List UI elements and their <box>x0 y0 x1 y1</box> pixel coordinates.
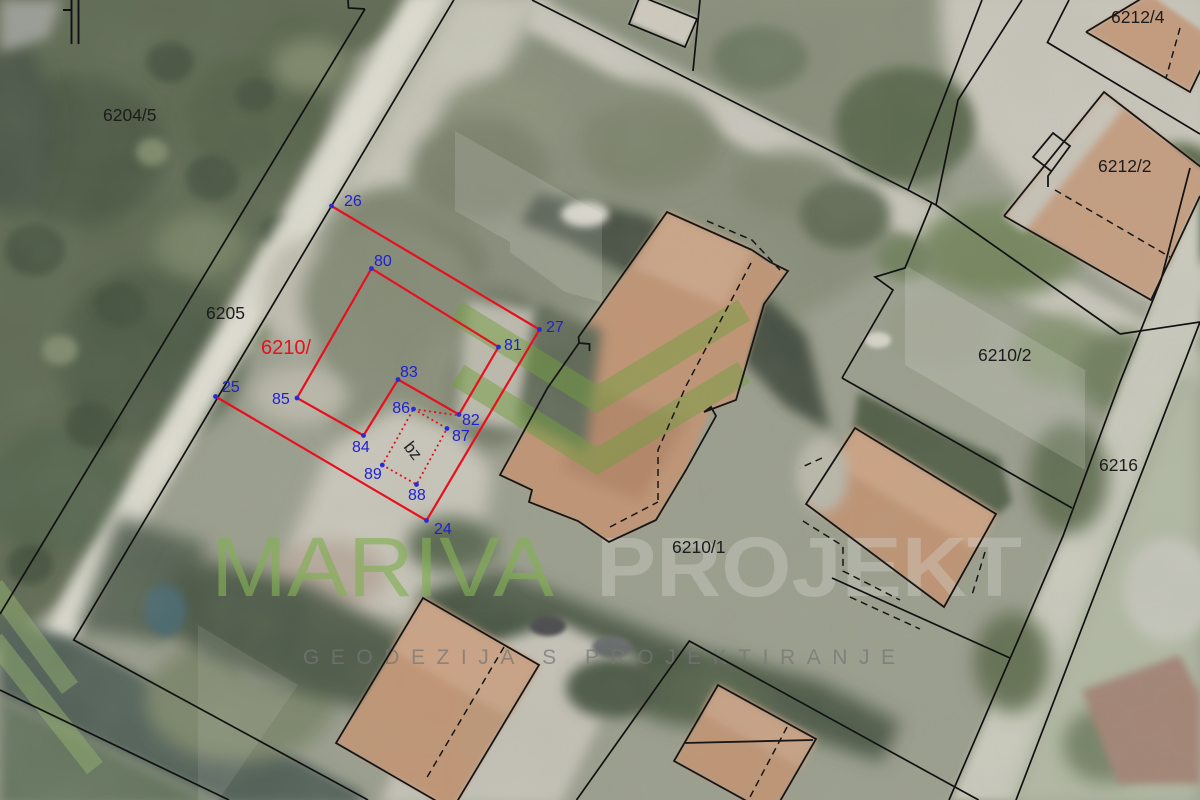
svg-text:6210/1: 6210/1 <box>672 537 726 557</box>
svg-text:6216: 6216 <box>1099 455 1138 475</box>
svg-text:6204/5: 6204/5 <box>103 105 157 125</box>
svg-text:26: 26 <box>344 193 362 210</box>
svg-text:87: 87 <box>452 428 470 445</box>
svg-text:86: 86 <box>392 400 410 417</box>
svg-text:83: 83 <box>400 364 418 381</box>
svg-text:80: 80 <box>374 253 392 270</box>
svg-text:6210/: 6210/ <box>261 337 311 359</box>
svg-text:89: 89 <box>364 466 382 483</box>
svg-text:27: 27 <box>546 319 564 336</box>
svg-text:84: 84 <box>352 439 370 456</box>
svg-text:6212/2: 6212/2 <box>1098 156 1152 176</box>
svg-text:6210/2: 6210/2 <box>978 345 1032 365</box>
svg-text:6205: 6205 <box>206 303 245 323</box>
svg-text:MARIVA: MARIVA <box>211 520 554 614</box>
svg-text:85: 85 <box>272 391 290 408</box>
svg-text:6212/4: 6212/4 <box>1111 7 1165 27</box>
svg-text:24: 24 <box>434 521 452 538</box>
svg-text:82: 82 <box>462 412 480 429</box>
svg-text:81: 81 <box>504 337 522 354</box>
svg-text:88: 88 <box>408 487 426 504</box>
svg-text:PROJEKT: PROJEKT <box>596 520 1022 614</box>
svg-text:25: 25 <box>222 379 240 396</box>
